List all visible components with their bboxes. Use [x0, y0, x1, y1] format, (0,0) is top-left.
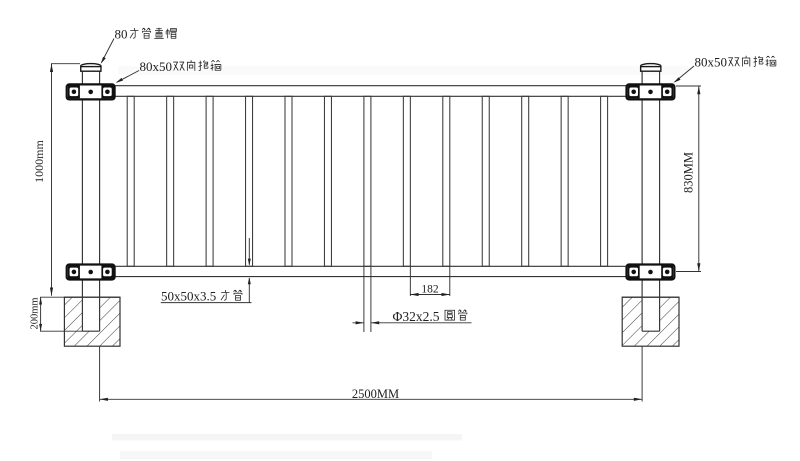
- svg-text:80x50: 80x50: [695, 55, 728, 70]
- svg-text:1000mm: 1000mm: [32, 140, 46, 183]
- svg-text:50x50x3.5: 50x50x3.5: [161, 288, 216, 303]
- svg-text:Φ32x2.5: Φ32x2.5: [393, 309, 440, 324]
- svg-text:830MM: 830MM: [681, 152, 695, 193]
- svg-text:200mm: 200mm: [30, 297, 41, 329]
- svg-text:80: 80: [115, 27, 128, 42]
- svg-text:80x50: 80x50: [140, 59, 173, 74]
- svg-text:2500MM: 2500MM: [352, 387, 399, 401]
- svg-text:182: 182: [421, 283, 439, 295]
